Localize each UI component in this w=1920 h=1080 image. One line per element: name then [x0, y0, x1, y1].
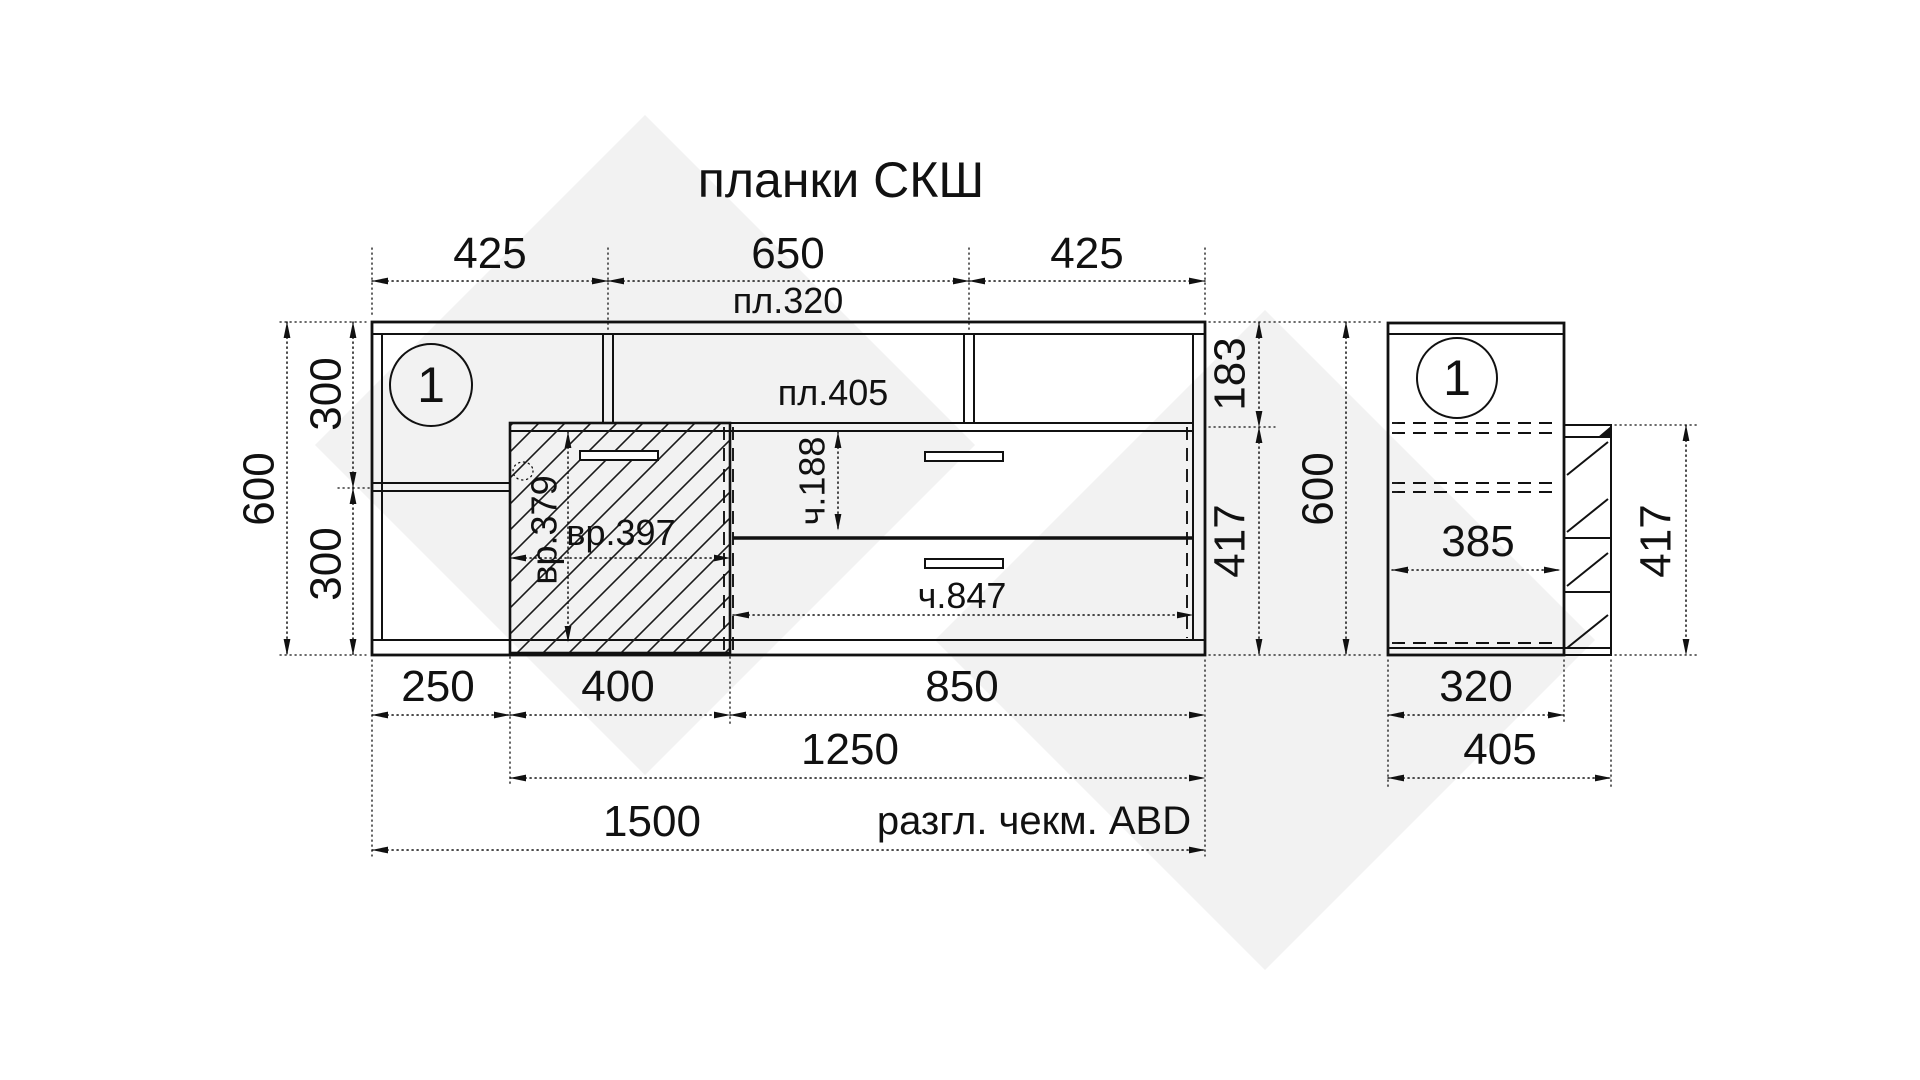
blueprint-page: планки СКШ 1	[0, 0, 1920, 1080]
side-strip-hatch-2	[1567, 499, 1608, 532]
label-shelf: пл.405	[778, 372, 889, 413]
dim-label-250: 250	[401, 662, 474, 711]
dim-label-1250: 1250	[801, 725, 899, 774]
label-door-height: вр.379	[524, 475, 565, 584]
drawing-title: планки СКШ	[698, 152, 984, 208]
dim-label-side-417: 417	[1632, 504, 1681, 577]
drawer2-handle	[925, 559, 1003, 568]
side-strip-wedge	[1598, 426, 1611, 437]
dim-label-320: 320	[1439, 662, 1512, 711]
dim-label-425-left: 425	[453, 229, 526, 278]
dim-label-600-middle: 600	[1294, 452, 1343, 525]
side-strip-hatch-3	[1567, 553, 1608, 586]
dim-label-300-lower: 300	[302, 527, 351, 600]
dim-label-300-upper: 300	[302, 357, 351, 430]
blueprint-drawing: планки СКШ 1	[0, 0, 1920, 1080]
label-drawer-width: ч.847	[918, 575, 1007, 616]
label-note: разгл. чекм. ABD	[877, 799, 1191, 843]
dim-label-425-right: 425	[1050, 229, 1123, 278]
dim-label-417: 417	[1206, 504, 1255, 577]
dim-label-400: 400	[581, 662, 654, 711]
drawer1-handle	[925, 452, 1003, 461]
dim-label-left-600: 600	[235, 452, 284, 525]
dim-label-650: 650	[751, 229, 824, 278]
side-strip-hatch-1	[1567, 442, 1608, 475]
dim-label-405: 405	[1463, 725, 1536, 774]
dim-label-183: 183	[1206, 337, 1255, 410]
dim-label-385: 385	[1441, 517, 1514, 566]
label-door-width: вр.397	[566, 512, 675, 553]
door-handle	[580, 451, 658, 460]
label-drawer-height: ч.188	[792, 437, 833, 526]
dim-label-1500: 1500	[603, 797, 701, 846]
dim-label-850: 850	[925, 662, 998, 711]
side-marker-number: 1	[1443, 350, 1471, 406]
label-top-panel: пл.320	[733, 280, 844, 321]
front-marker-number: 1	[417, 357, 445, 413]
